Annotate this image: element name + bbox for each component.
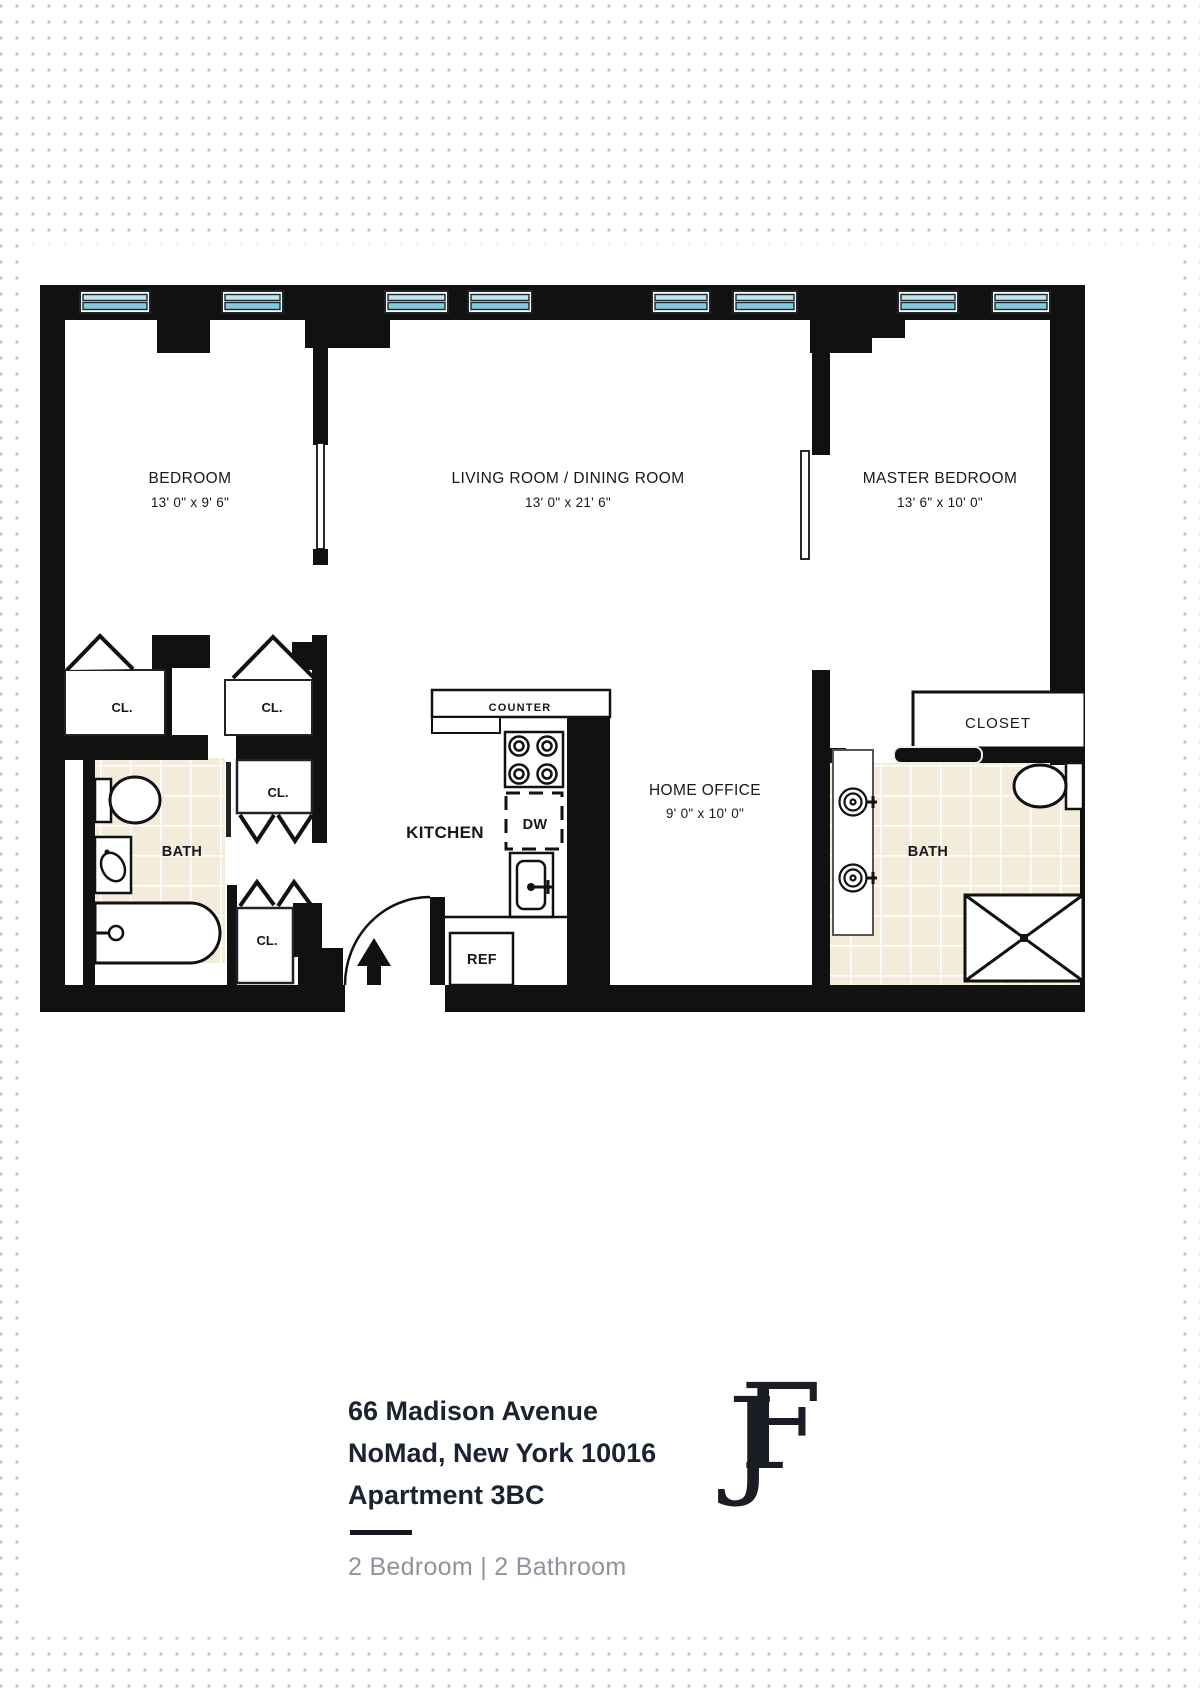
sliding-door-icon (801, 451, 809, 559)
bath-sink-icon (95, 837, 131, 893)
kitchen-label: KITCHEN (406, 823, 484, 842)
bath-left-label: BATH (162, 844, 202, 860)
closet-label-4: CL. (257, 933, 278, 948)
closet-small-3 (237, 760, 312, 841)
window-icon (733, 291, 797, 313)
bath-right-label: BATH (908, 844, 948, 860)
counter-shelf (432, 717, 500, 733)
living-room-dims: 13' 0" x 21' 6" (525, 495, 611, 510)
window-icon (222, 291, 283, 313)
kitchen-sink-icon (510, 853, 553, 917)
walk-in-closet-label: CLOSET (965, 715, 1031, 732)
window-icon (385, 291, 448, 313)
closet-small-1 (65, 636, 165, 735)
window-icon (898, 291, 958, 313)
closet-door-chevron-icon (240, 882, 311, 906)
living-room-label: LIVING ROOM / DINING ROOM (451, 470, 684, 487)
home-office-label: HOME OFFICE (649, 782, 761, 799)
address-line-2: NoMad, New York 10016 (348, 1432, 656, 1474)
bed-bath-summary: 2 Bedroom | 2 Bathroom (348, 1553, 656, 1582)
floorplan-drawing: BEDROOM 13' 0" x 9' 6" LIVING ROOM / DIN… (40, 285, 1085, 1012)
address-block: 66 Madison Avenue NoMad, New York 10016 … (348, 1390, 656, 1582)
window-icon (468, 291, 532, 313)
closet-label-3: CL. (268, 785, 289, 800)
toilet-icon (1014, 763, 1083, 809)
refrigerator-label: REF (467, 952, 497, 968)
home-office-dims: 9' 0" x 10' 0" (666, 806, 744, 821)
bedroom-label: BEDROOM (149, 470, 232, 487)
entry-door-leaf (430, 897, 445, 985)
window-icon (992, 291, 1050, 313)
closet-label-1: CL. (112, 700, 133, 715)
window-icon (80, 291, 150, 313)
bath-door-leaf (894, 747, 982, 763)
door-swing-icon (345, 897, 430, 985)
shower-icon (965, 895, 1083, 981)
dishwasher-label: DW (523, 817, 548, 833)
toilet-icon (95, 777, 160, 823)
counter-label: COUNTER (489, 702, 552, 714)
divider (350, 1530, 412, 1535)
bath-door-leaf (226, 762, 231, 837)
master-bedroom-dims: 13' 6" x 10' 0" (897, 495, 983, 510)
master-bedroom-label: MASTER BEDROOM (863, 470, 1018, 487)
double-vanity-icon (833, 750, 877, 935)
window-icon (652, 291, 710, 313)
entry-arrow-icon (357, 938, 391, 985)
bathtub-icon (95, 903, 220, 963)
bedroom-dims: 13' 0" x 9' 6" (151, 495, 229, 510)
closet-label-2: CL. (262, 700, 283, 715)
entry-door (345, 897, 445, 985)
closet-door-chevron-icon (67, 636, 133, 670)
address-line-3: Apartment 3BC (348, 1474, 656, 1516)
address-line-1: 66 Madison Avenue (348, 1390, 656, 1432)
jf-logo: JF (728, 1382, 822, 1500)
closet-door-vee-icon (240, 815, 312, 841)
page: { "plan": { "bedroom_name": "BEDROOM", "… (0, 0, 1200, 1697)
sliding-door-icon (317, 443, 324, 549)
